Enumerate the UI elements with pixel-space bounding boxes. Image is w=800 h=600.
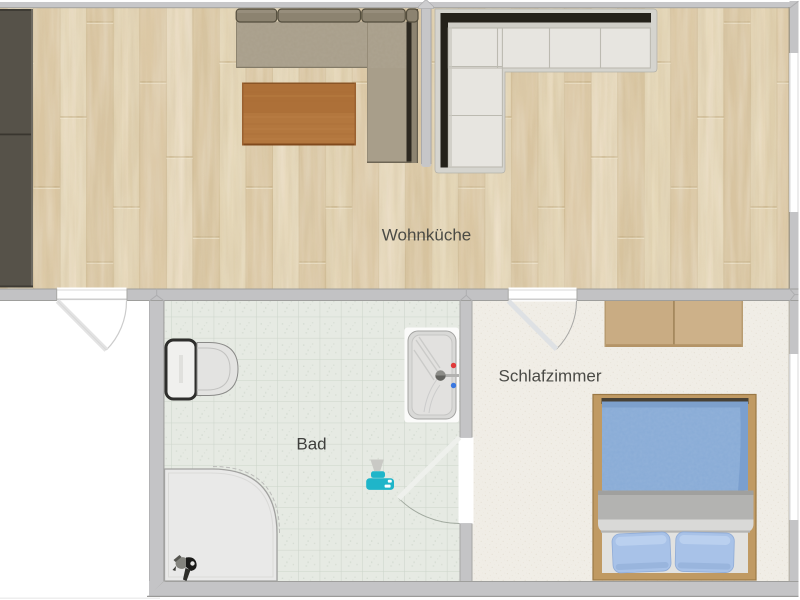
svg-text:Wohnküche: Wohnküche: [382, 226, 471, 245]
svg-text:Bad: Bad: [296, 435, 326, 454]
svg-text:Schlafzimmer: Schlafzimmer: [499, 367, 602, 386]
